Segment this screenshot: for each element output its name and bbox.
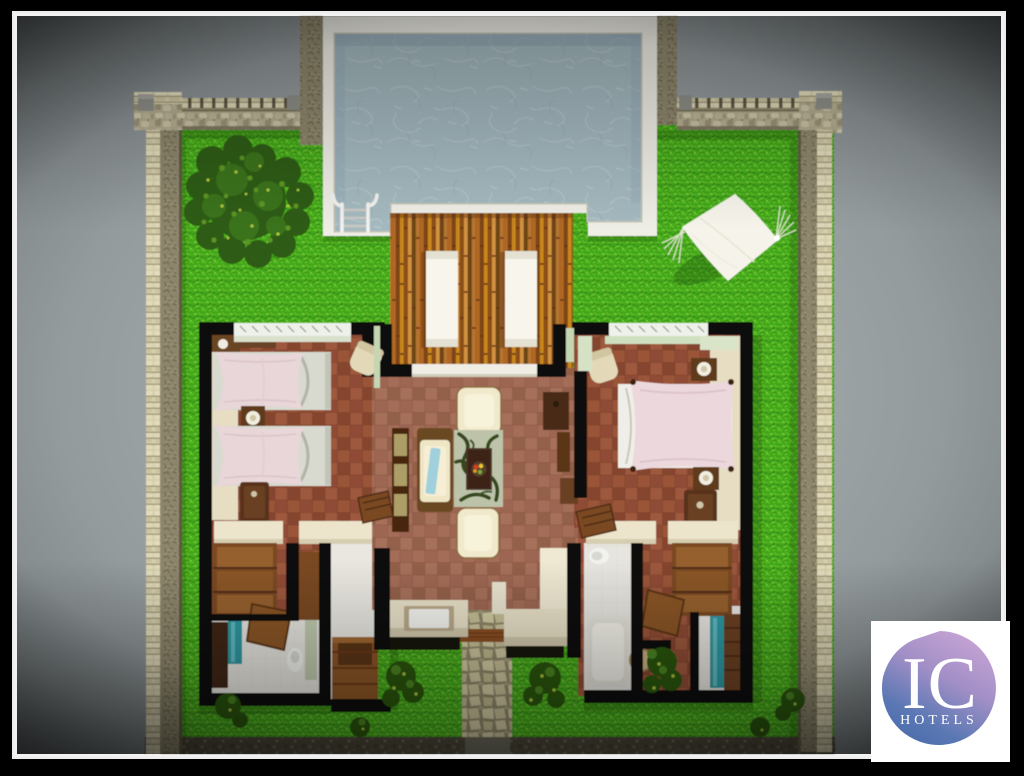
svg-text:HOTELS: HOTELS	[900, 713, 978, 728]
